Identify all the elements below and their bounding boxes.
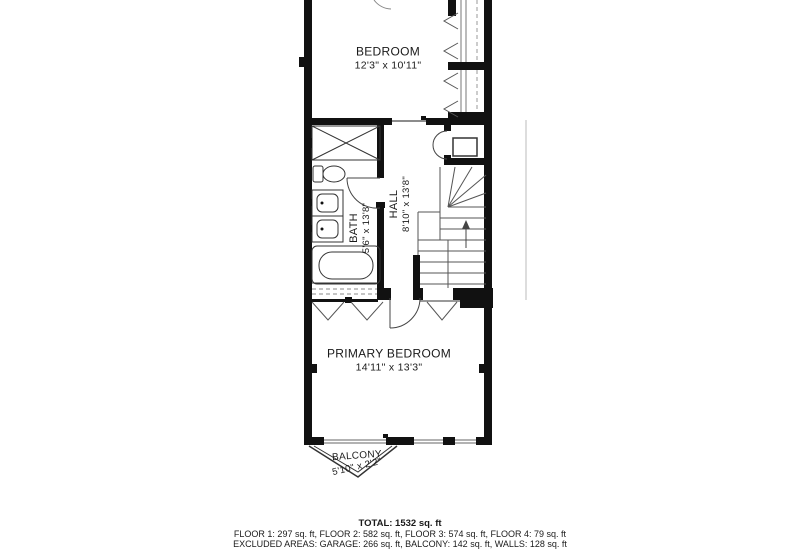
staircase	[418, 167, 486, 288]
closet-door-chevron	[351, 302, 383, 320]
interior-wall	[377, 288, 391, 300]
closet-door-chevron	[312, 302, 344, 320]
room-dims: 14'11" x 13'3"	[327, 362, 451, 374]
wall-tick	[479, 364, 484, 373]
bedroom-label: BEDROOM 12'3" x 10'11"	[355, 45, 422, 72]
stair-direction-arrow	[462, 220, 470, 229]
interior-wall	[413, 288, 423, 300]
wall-tick	[299, 57, 304, 67]
appliance	[453, 138, 477, 156]
door-swing-arc	[390, 298, 420, 328]
vanity-sink	[306, 190, 343, 216]
summary-total: TOTAL: 1532 sq. ft	[0, 519, 800, 529]
primary-bottom-wall	[304, 434, 492, 445]
exterior-wall-left	[304, 0, 312, 445]
room-dims: 12'3" x 10'11"	[355, 60, 422, 72]
interior-wall	[304, 118, 392, 125]
room-name: BATH	[348, 203, 360, 253]
shower	[306, 126, 380, 160]
hall-label: HALL 8'10" x 13'8"	[388, 176, 412, 232]
room-name: PRIMARY BEDROOM	[327, 347, 451, 361]
interior-wall	[426, 118, 484, 125]
room-dims: 5'6" x 13'8"	[361, 203, 372, 253]
casement-chevron-icon	[444, 73, 458, 89]
interior-wall	[460, 288, 493, 308]
casement-chevron-icon	[444, 43, 458, 59]
summary-excluded: EXCLUDED AREAS: GARAGE: 266 sq. ft, BALC…	[0, 540, 800, 550]
closet-door-chevron	[427, 302, 457, 320]
shower-valve-icon	[306, 138, 312, 148]
wall-tick	[312, 364, 317, 373]
bifold-door-arc	[433, 131, 447, 145]
bath-label: BATH 5'6" x 13'8"	[348, 203, 372, 253]
window-pier	[448, 62, 484, 70]
room-name: BEDROOM	[355, 45, 422, 59]
primary-bedroom-label: PRIMARY BEDROOM 14'11" x 13'3"	[327, 347, 451, 374]
door-swing-arc	[374, 0, 391, 9]
vanity-sink	[306, 216, 343, 242]
window-pier	[443, 437, 455, 445]
exterior-wall-right	[484, 0, 492, 445]
interior-wall	[413, 255, 420, 293]
primary-bedroom-door	[390, 298, 420, 328]
door-jamb	[421, 116, 426, 120]
room-dims: 8'10" x 13'8"	[401, 176, 412, 232]
bedroom-window-band	[444, 0, 484, 125]
door-jamb	[376, 202, 385, 208]
floorplan-page: BEDROOM 12'3" x 10'11" BATH 5'6" x 13'8"…	[0, 0, 800, 550]
window-pier	[448, 0, 456, 16]
toilet	[313, 166, 345, 182]
hall-closet	[433, 125, 485, 165]
room-name: HALL	[388, 176, 400, 232]
floorplan-drawing	[0, 0, 800, 550]
